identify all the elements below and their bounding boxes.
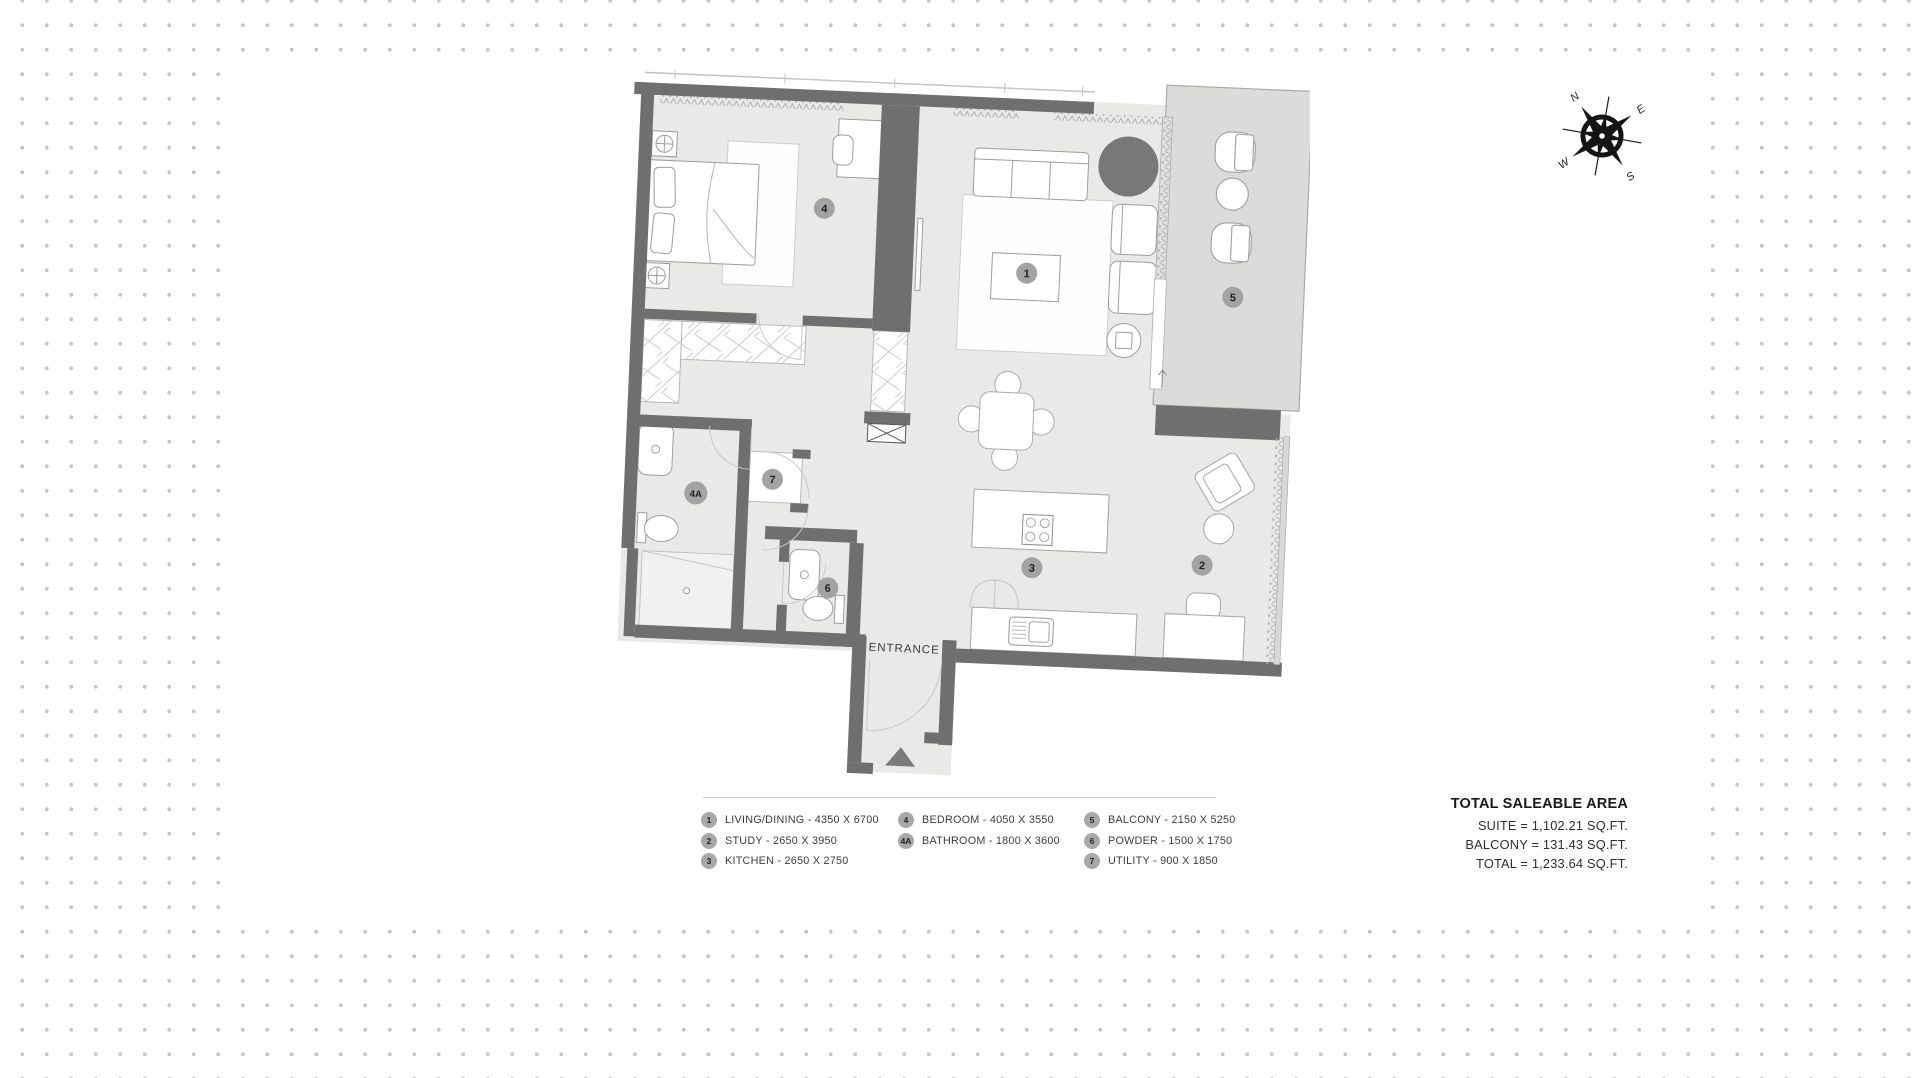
legend-item: 4A BATHROOM - 1800 X 3600 bbox=[898, 831, 1084, 852]
legend-badge: 5 bbox=[1084, 812, 1100, 828]
plan-rotated-group: ENTRANCE 1 2 3 4 4A 5 6 7 bbox=[605, 70, 1310, 790]
room-badge-study: 2 bbox=[1199, 560, 1206, 572]
floor-plan: ENTRANCE 1 2 3 4 4A 5 6 7 bbox=[600, 70, 1310, 790]
study-desk bbox=[1163, 614, 1245, 661]
room-badge-living: 1 bbox=[1023, 268, 1030, 280]
burner bbox=[1040, 533, 1049, 542]
closet-hatch bbox=[681, 321, 807, 364]
study-side-table bbox=[1203, 513, 1234, 544]
legend-item: 3 KITCHEN - 2650 X 2750 bbox=[701, 851, 898, 872]
legend-item: 4 BEDROOM - 4050 X 3550 bbox=[898, 810, 1084, 831]
armchair bbox=[1111, 204, 1158, 256]
side-table-top bbox=[1116, 332, 1133, 349]
total-saleable-area: TOTAL SALEABLE AREA SUITE = 1,102.21 SQ.… bbox=[1451, 796, 1628, 874]
legend-badge: 3 bbox=[701, 853, 717, 869]
legend-label: POWDER - 1500 X 1750 bbox=[1108, 835, 1232, 847]
bedroom-desk-chair bbox=[832, 135, 853, 166]
powder-toilet-tank bbox=[834, 595, 844, 623]
legend-label: KITCHEN - 2650 X 2750 bbox=[725, 855, 848, 867]
armchair bbox=[1108, 261, 1157, 315]
cooktop bbox=[1022, 514, 1053, 545]
legend-badge: 4A bbox=[898, 833, 914, 849]
legend-item: 6 POWDER - 1500 X 1750 bbox=[1084, 831, 1244, 852]
legend-item: 7 UTILITY - 900 X 1850 bbox=[1084, 851, 1244, 872]
closet-hatch bbox=[641, 320, 683, 404]
totals-title: TOTAL SALEABLE AREA bbox=[1451, 796, 1628, 812]
legend-label: BEDROOM - 4050 X 3550 bbox=[922, 814, 1054, 826]
balcony-table bbox=[1216, 177, 1249, 210]
legend-badge: 6 bbox=[1084, 833, 1100, 849]
legend-label: UTILITY - 900 X 1850 bbox=[1108, 855, 1218, 867]
legend-badge: 7 bbox=[1084, 853, 1100, 869]
powder-sink-drain bbox=[800, 571, 808, 579]
bed-pillow bbox=[654, 167, 675, 207]
compass-rose: N E S W bbox=[1545, 78, 1660, 193]
wardrobe-hatch bbox=[871, 331, 908, 412]
totals-total: TOTAL = 1,233.64 SQ.FT. bbox=[1451, 854, 1628, 873]
legend-label: BATHROOM - 1800 X 3600 bbox=[922, 835, 1060, 847]
balcony-chair-back bbox=[1230, 225, 1250, 262]
legend-label: STUDY - 2650 X 3950 bbox=[725, 835, 837, 847]
legend-item: 5 BALCONY - 2150 X 5250 bbox=[1084, 810, 1244, 831]
kitchen-sink-bowl bbox=[1029, 622, 1050, 643]
dining-table bbox=[978, 391, 1034, 450]
legend-divider bbox=[703, 797, 1216, 798]
compass-e: E bbox=[1635, 102, 1648, 116]
room-badge-utility: 7 bbox=[769, 474, 776, 486]
compass-w: W bbox=[1556, 155, 1573, 172]
room-badge-powder: 6 bbox=[824, 583, 831, 595]
legend-item: 2 STUDY - 2650 X 3950 bbox=[701, 831, 898, 852]
legend-item: 1 LIVING/DINING - 4350 X 6700 bbox=[701, 810, 898, 831]
burner bbox=[1026, 518, 1035, 527]
compass-s: S bbox=[1624, 170, 1637, 184]
legend-label: LIVING/DINING - 4350 X 6700 bbox=[725, 814, 879, 826]
compass-n: N bbox=[1568, 90, 1581, 104]
legend-badge: 1 bbox=[701, 812, 717, 828]
balcony-chair-back bbox=[1234, 134, 1254, 171]
totals-balcony: BALCONY = 131.43 SQ.FT. bbox=[1451, 835, 1628, 854]
totals-suite: SUITE = 1,102.21 SQ.FT. bbox=[1451, 816, 1628, 835]
bathroom-sink-drain bbox=[651, 445, 659, 453]
shower-drain bbox=[683, 588, 689, 594]
burner bbox=[1040, 519, 1049, 528]
sofa bbox=[973, 148, 1089, 201]
legend-label: BALCONY - 2150 X 5250 bbox=[1108, 814, 1236, 826]
room-badge-bathroom: 4A bbox=[689, 489, 702, 501]
bed-pillow bbox=[650, 212, 675, 254]
room-badge-kitchen: 3 bbox=[1028, 563, 1035, 575]
burner bbox=[1026, 532, 1035, 541]
legend-badge: 2 bbox=[701, 833, 717, 849]
legend-badge: 4 bbox=[898, 812, 914, 828]
legend: 1 LIVING/DINING - 4350 X 6700 2 STUDY - … bbox=[701, 810, 1244, 872]
room-badge-balcony: 5 bbox=[1229, 292, 1236, 304]
